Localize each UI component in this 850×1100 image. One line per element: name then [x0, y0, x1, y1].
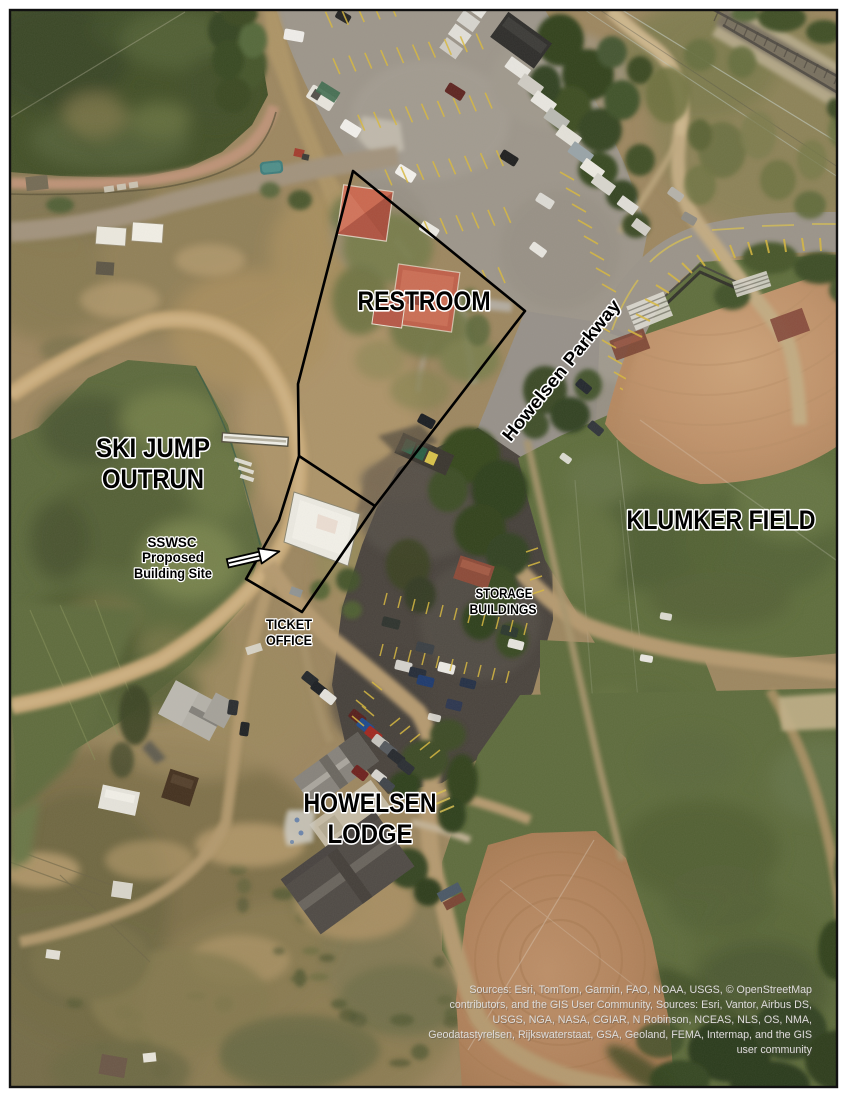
svg-text:contributors, and the GIS User: contributors, and the GIS User Community…: [449, 999, 812, 1011]
svg-text:Sources: Esri, TomTom, Garmin,: Sources: Esri, TomTom, Garmin, FAO, NOAA…: [469, 984, 812, 996]
svg-text:BUILDINGS: BUILDINGS: [470, 601, 537, 617]
svg-text:user community: user community: [737, 1044, 813, 1056]
svg-text:TICKET: TICKET: [266, 616, 312, 632]
svg-text:RESTROOM: RESTROOM: [358, 286, 491, 316]
svg-text:KLUMKER FIELD: KLUMKER FIELD: [627, 505, 816, 535]
svg-text:USGS, NGA, NASA, CGIAR, N Robi: USGS, NGA, NASA, CGIAR, N Robinson, NCEA…: [492, 1014, 812, 1026]
svg-text:Building Site: Building Site: [134, 565, 212, 581]
svg-text:OUTRUN: OUTRUN: [102, 464, 204, 494]
svg-text:Geodatastyrelsen, Rijkswaterst: Geodatastyrelsen, Rijkswaterstaat, GSA, …: [428, 1029, 812, 1041]
svg-text:Proposed: Proposed: [142, 549, 204, 565]
svg-text:STORAGE: STORAGE: [476, 585, 533, 601]
svg-text:LODGE: LODGE: [328, 819, 413, 849]
svg-text:SSWSC: SSWSC: [148, 534, 197, 550]
svg-text:HOWELSEN: HOWELSEN: [304, 788, 437, 818]
svg-text:OFFICE: OFFICE: [266, 632, 312, 648]
svg-text:SKI JUMP: SKI JUMP: [96, 433, 210, 463]
